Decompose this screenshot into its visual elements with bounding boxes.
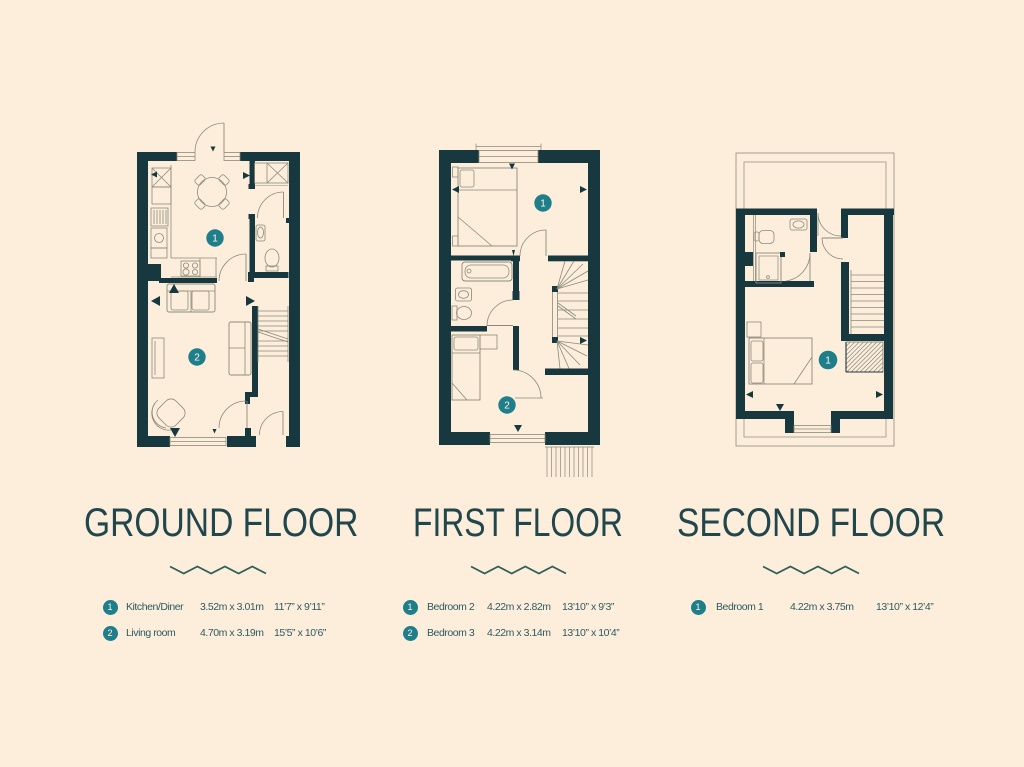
- svg-text:2: 2: [194, 352, 200, 363]
- svg-text:1: 1: [212, 233, 218, 244]
- svg-text:2: 2: [504, 400, 510, 411]
- svg-text:1: 1: [825, 355, 831, 366]
- svg-text:1: 1: [540, 198, 546, 209]
